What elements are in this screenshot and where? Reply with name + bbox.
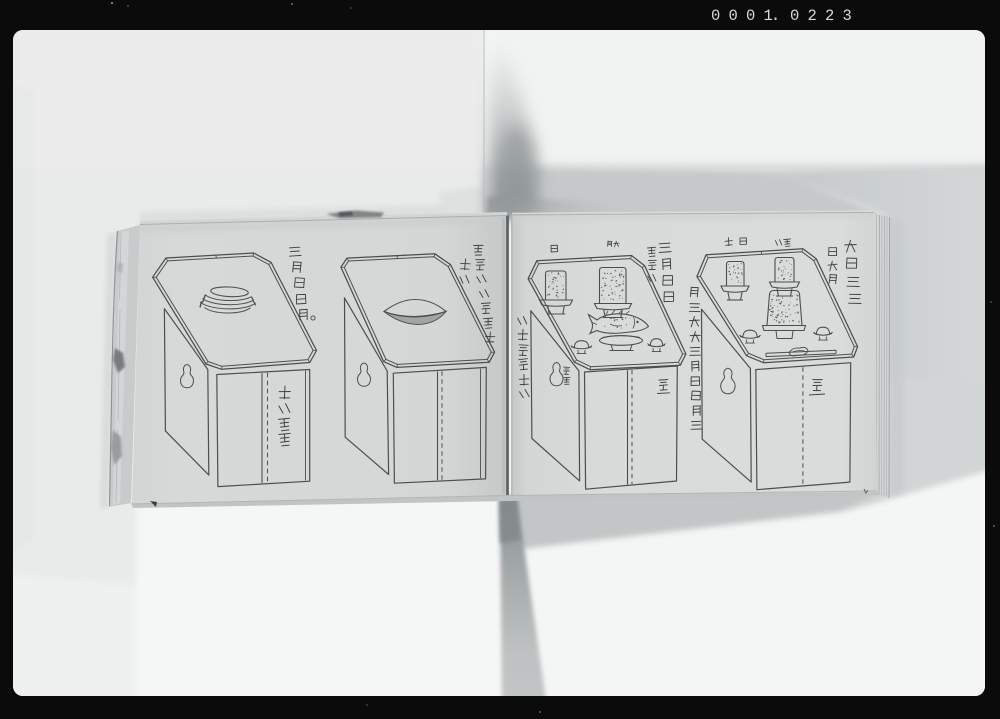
svg-text:0223: 0223 (790, 7, 860, 25)
svg-text:0001: 0001 (711, 7, 781, 25)
